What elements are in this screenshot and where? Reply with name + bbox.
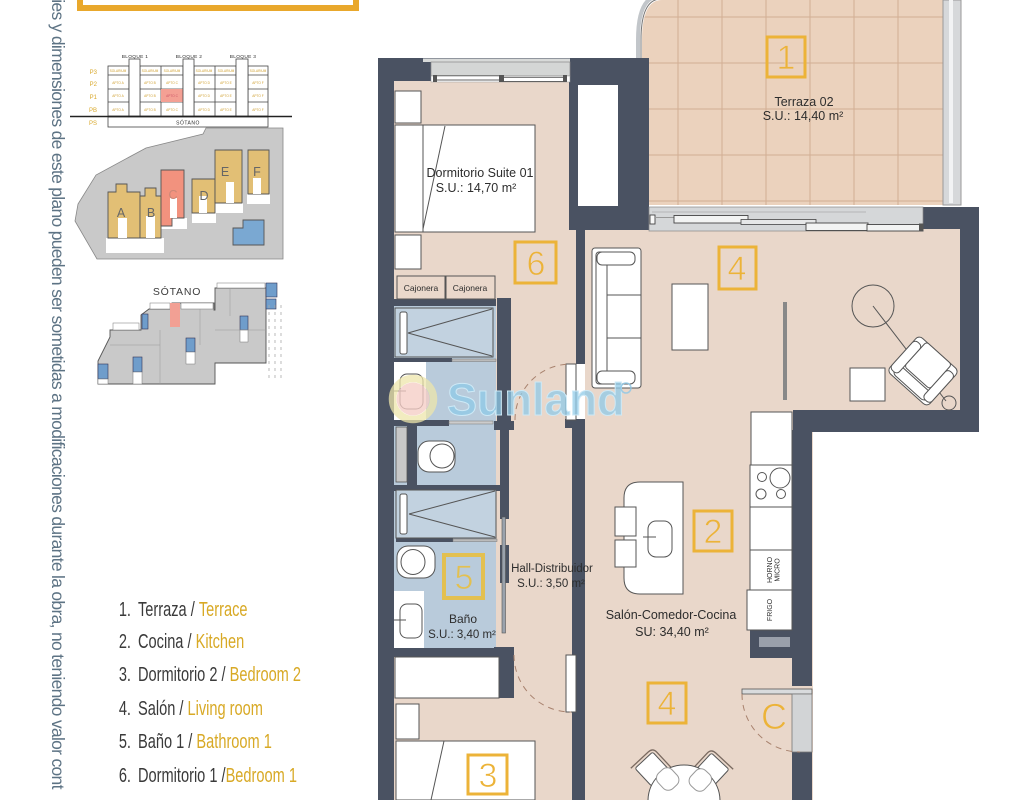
svg-text:SÓTANO: SÓTANO: [176, 120, 200, 127]
svg-text:PS: PS: [89, 121, 97, 127]
svg-text:Baño 1 / Bathroom 1: Baño 1 / Bathroom 1: [138, 730, 272, 753]
svg-text:B: B: [147, 206, 155, 220]
svg-text:SOLARIUM: SOLARIUM: [110, 69, 127, 73]
svg-text:4.: 4.: [119, 697, 131, 720]
svg-text:APTO A: APTO A: [112, 94, 124, 98]
svg-text:APTO E: APTO E: [220, 81, 232, 85]
svg-text:SOLARIUM: SOLARIUM: [196, 69, 213, 73]
svg-text:APTO D: APTO D: [198, 81, 211, 85]
svg-text:Terraza 02: Terraza 02: [774, 95, 833, 109]
svg-text:4: 4: [728, 250, 747, 288]
svg-text:F: F: [253, 165, 261, 179]
svg-text:FRIGO: FRIGO: [767, 598, 774, 621]
svg-text:S.U.: 3,50 m²: S.U.: 3,50 m²: [517, 578, 585, 590]
svg-text:BLOQUE 2: BLOQUE 2: [176, 54, 202, 60]
svg-text:6.: 6.: [119, 764, 131, 787]
svg-text:P3: P3: [90, 70, 98, 76]
svg-text:APTO A: APTO A: [112, 81, 124, 85]
svg-text:SOLARIUM: SOLARIUM: [142, 69, 159, 73]
svg-text:APTO F: APTO F: [252, 81, 264, 85]
svg-text:S.U.: 14,70 m²: S.U.: 14,70 m²: [436, 181, 517, 195]
svg-text:APTO A: APTO A: [112, 108, 124, 112]
svg-text:1.: 1.: [119, 598, 131, 621]
svg-text:6: 6: [527, 245, 546, 283]
svg-text:APTO E: APTO E: [220, 108, 232, 112]
svg-text:5: 5: [455, 559, 474, 597]
svg-text:APTO B: APTO B: [144, 94, 156, 98]
svg-text:Cocina / Kitchen: Cocina / Kitchen: [138, 630, 244, 653]
svg-text:APTO D: APTO D: [198, 108, 211, 112]
svg-text:2: 2: [704, 513, 723, 551]
svg-text:2.: 2.: [119, 630, 131, 653]
svg-text:icies y dimensiones de este pl: icies y dimensiones de este plano pueden…: [48, 0, 68, 790]
svg-text:APTO E: APTO E: [220, 94, 232, 98]
svg-text:HORNOMICRO: HORNOMICRO: [767, 556, 782, 583]
svg-text:S.U.: 14,40 m²: S.U.: 14,40 m²: [763, 109, 844, 123]
svg-text:Sunland: Sunland: [447, 374, 625, 425]
svg-text:C: C: [761, 696, 787, 737]
svg-text:BLOQUE 3: BLOQUE 3: [230, 54, 256, 60]
svg-text:APTO C: APTO C: [166, 94, 179, 98]
svg-text:APTO C: APTO C: [166, 81, 179, 85]
svg-text:4: 4: [658, 685, 677, 723]
svg-text:APTO F: APTO F: [252, 108, 264, 112]
svg-text:3.: 3.: [119, 663, 131, 686]
svg-text:Dormitorio 2 / Bedroom 2: Dormitorio 2 / Bedroom 2: [138, 663, 301, 686]
svg-text:A: A: [117, 206, 126, 220]
svg-text:E: E: [221, 165, 229, 179]
svg-text:Terraza / Terrace: Terraza / Terrace: [138, 598, 247, 621]
svg-text:3: 3: [479, 757, 498, 795]
svg-text:SOLARIUM: SOLARIUM: [218, 69, 235, 73]
svg-text:S.U.: 3,40 m²: S.U.: 3,40 m²: [428, 629, 496, 641]
svg-text:APTO C: APTO C: [166, 108, 179, 112]
svg-text:P2: P2: [90, 82, 98, 88]
svg-text:SÓTANO: SÓTANO: [153, 285, 201, 298]
svg-text:BLOQUE 1: BLOQUE 1: [122, 54, 148, 60]
svg-text:Dormitorio 1 /Bedroom 1: Dormitorio 1 /Bedroom 1: [138, 764, 297, 787]
svg-text:Salón / Living room: Salón / Living room: [138, 697, 263, 720]
svg-text:Salón-Comedor-Cocina: Salón-Comedor-Cocina: [606, 608, 737, 622]
svg-text:1: 1: [777, 39, 796, 77]
svg-text:APTO B: APTO B: [144, 81, 156, 85]
svg-text:P1: P1: [90, 95, 98, 101]
svg-text:Dormitorio Suite 01: Dormitorio Suite 01: [427, 166, 534, 180]
svg-text:Hall-Distribuidor: Hall-Distribuidor: [511, 563, 593, 575]
svg-text:APTO B: APTO B: [144, 108, 156, 112]
svg-text:APTO D: APTO D: [198, 94, 211, 98]
svg-text:APTO F: APTO F: [252, 94, 264, 98]
svg-text:D: D: [199, 189, 208, 203]
svg-text:Cajonera: Cajonera: [404, 283, 439, 293]
svg-text:5.: 5.: [119, 730, 131, 753]
svg-text:Baño: Baño: [449, 612, 477, 626]
svg-text:Cajonera: Cajonera: [453, 283, 488, 293]
svg-text:PB: PB: [89, 108, 97, 114]
svg-text:SU: 34,40 m²: SU: 34,40 m²: [635, 625, 709, 639]
svg-text:C: C: [168, 188, 177, 202]
svg-text:SOLARIUM: SOLARIUM: [250, 69, 267, 73]
svg-text:SOLARIUM: SOLARIUM: [164, 69, 181, 73]
